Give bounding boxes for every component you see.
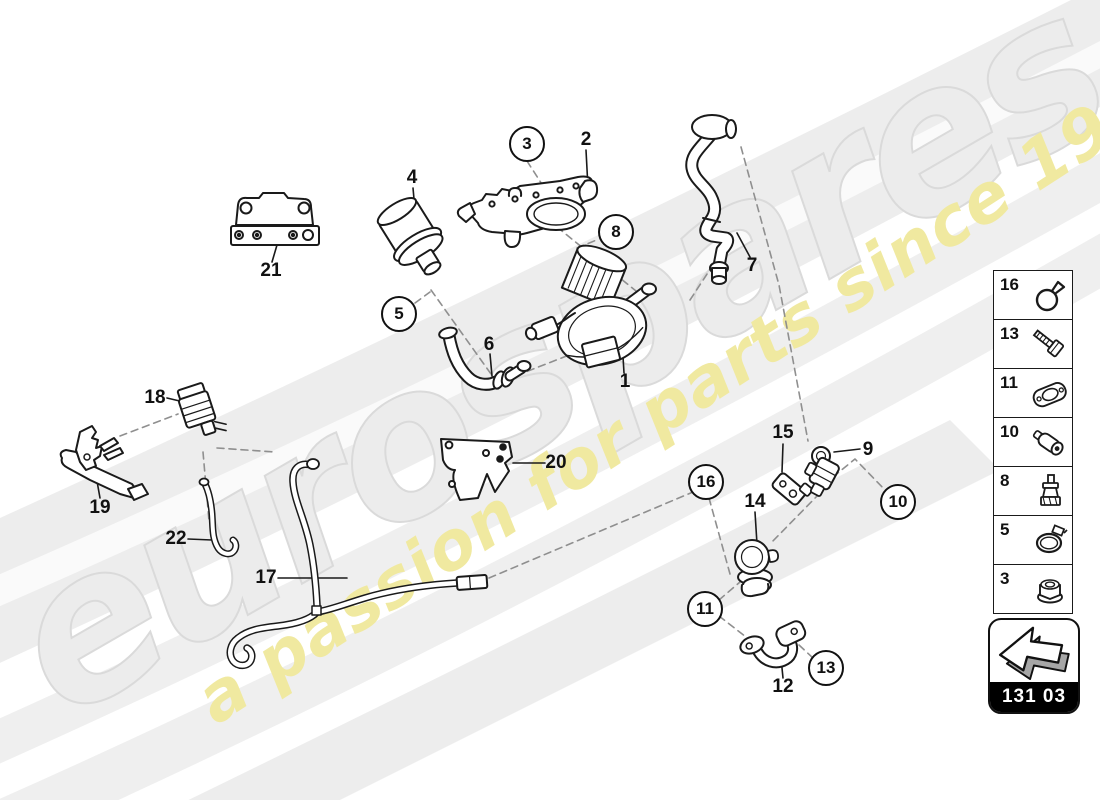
- back-arrow-icon: [992, 622, 1074, 680]
- diagram-code-band: 131 03: [990, 682, 1078, 712]
- part-label-15[interactable]: 15: [772, 422, 793, 444]
- circled-callout-3[interactable]: 3: [509, 126, 545, 162]
- sidebar-item-13[interactable]: 13: [994, 320, 1072, 369]
- sidebar-item-5[interactable]: 5: [994, 516, 1072, 565]
- part-label-6[interactable]: 6: [484, 334, 495, 356]
- sidebar-item-16[interactable]: 16: [994, 271, 1072, 320]
- part-label-9[interactable]: 9: [863, 439, 874, 461]
- part-label-2[interactable]: 2: [581, 129, 592, 151]
- sidebar-item-number: 13: [1000, 324, 1019, 344]
- parts-diagram-page: eurospares a passion for parts since 198…: [0, 0, 1100, 800]
- part-label-17[interactable]: 17: [255, 567, 276, 589]
- union-connector-icon: [1031, 423, 1069, 461]
- diagram-code-text: 131 03: [1002, 686, 1066, 708]
- part-17-fuel-line-drawing: [230, 459, 487, 665]
- circled-callout-5[interactable]: 5: [381, 296, 417, 332]
- flange-nut-icon: [1031, 570, 1069, 608]
- circled-callout-11[interactable]: 11: [687, 591, 723, 627]
- sidebar-item-number: 10: [1000, 422, 1019, 442]
- sidebar-item-number: 5: [1000, 520, 1009, 540]
- part-21-bracket-plate-drawing: [231, 193, 319, 245]
- part-label-7[interactable]: 7: [747, 255, 758, 277]
- spring-clamp-icon: [1031, 276, 1069, 314]
- part-22-pipe-drawing: [200, 479, 236, 554]
- part-18-solenoid-drawing: [175, 380, 228, 442]
- part-label-1[interactable]: 1: [620, 371, 631, 393]
- hardware-sidebar: 16 13 11: [993, 270, 1073, 614]
- sidebar-item-3[interactable]: 3: [994, 565, 1072, 613]
- rubber-mount-icon: [1031, 472, 1069, 510]
- sidebar-item-number: 8: [1000, 471, 1009, 491]
- part-label-12[interactable]: 12: [772, 676, 793, 698]
- part-14-valve-drawing: [735, 540, 778, 596]
- sidebar-item-11[interactable]: 11: [994, 369, 1072, 418]
- circled-callout-10[interactable]: 10: [880, 484, 916, 520]
- gasket-icon: [1031, 374, 1069, 412]
- circled-callout-8[interactable]: 8: [598, 214, 634, 250]
- part-label-18[interactable]: 18: [144, 387, 165, 409]
- part-1-air-pump-drawing: [523, 240, 656, 375]
- sidebar-item-8[interactable]: 8: [994, 467, 1072, 516]
- diagram-code-box[interactable]: 131 03: [988, 618, 1080, 714]
- part-label-22[interactable]: 22: [165, 528, 186, 550]
- sidebar-item-number: 16: [1000, 275, 1019, 295]
- worm-clamp-icon: [1031, 521, 1069, 559]
- hex-bolt-icon: [1031, 325, 1069, 363]
- part-20-heat-shield-drawing: [441, 439, 512, 500]
- sidebar-item-10[interactable]: 10: [994, 418, 1072, 467]
- part-label-4[interactable]: 4: [407, 167, 418, 189]
- sidebar-item-number: 11: [1000, 373, 1018, 393]
- part-label-20[interactable]: 20: [545, 452, 566, 474]
- part-label-21[interactable]: 21: [260, 260, 281, 282]
- part-label-19[interactable]: 19: [89, 497, 110, 519]
- circled-callout-13[interactable]: 13: [808, 650, 844, 686]
- part-4-valve-drawing: [370, 190, 458, 286]
- part-19-bracket-drawing: [61, 426, 148, 500]
- sidebar-item-number: 3: [1000, 569, 1009, 589]
- part-12-flanged-pipe-drawing: [738, 619, 808, 663]
- part-label-14[interactable]: 14: [744, 491, 765, 513]
- circled-callout-16[interactable]: 16: [688, 464, 724, 500]
- part-2-bracket-assembly-drawing: [458, 177, 597, 248]
- part-7-hose-drawing: [692, 115, 736, 284]
